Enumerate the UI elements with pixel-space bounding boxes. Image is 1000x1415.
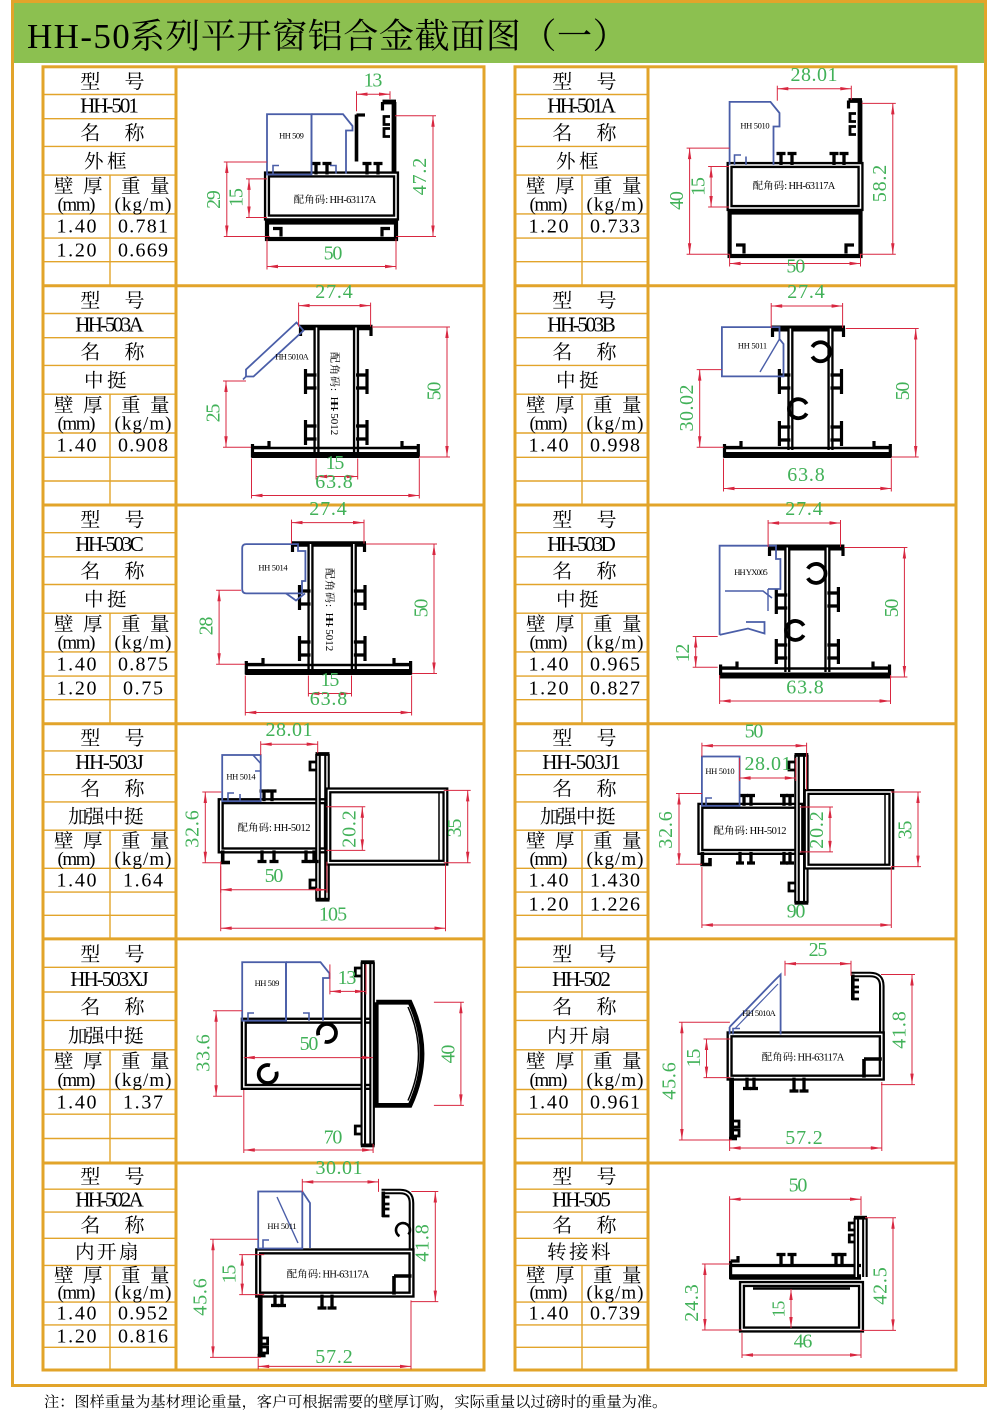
svg-text:(kg/m): (kg/m) — [587, 1283, 644, 1304]
svg-text:HH-503J: HH-503J — [75, 750, 144, 774]
svg-text:58.2: 58.2 — [869, 165, 891, 203]
svg-text:(mm): (mm) — [58, 1070, 96, 1091]
svg-text:(mm): (mm) — [530, 1070, 568, 1091]
svg-text:1.20: 1.20 — [529, 893, 569, 915]
svg-text:HH 5014: HH 5014 — [226, 772, 256, 782]
svg-text:(mm): (mm) — [58, 194, 96, 215]
svg-text:50: 50 — [786, 256, 805, 278]
svg-text:: HH-5012: : HH-5012 — [269, 823, 311, 834]
svg-text:HH 5010A: HH 5010A — [742, 1008, 776, 1018]
svg-text:: HH-63117A: : HH-63117A — [318, 1270, 370, 1281]
svg-text:HH-501A: HH-501A — [547, 94, 616, 118]
svg-text:45.6: 45.6 — [190, 1278, 212, 1316]
svg-text:15: 15 — [688, 177, 710, 196]
svg-text:1.20: 1.20 — [57, 240, 97, 262]
svg-text:15: 15 — [226, 188, 248, 207]
svg-text:50: 50 — [881, 599, 903, 618]
svg-text:25: 25 — [203, 404, 225, 423]
svg-text:1.20: 1.20 — [529, 216, 569, 238]
svg-text:HH-501: HH-501 — [80, 94, 139, 118]
svg-text:0.75: 0.75 — [123, 678, 163, 700]
svg-text:30.02: 30.02 — [676, 385, 698, 432]
svg-text:: HH-63117A: : HH-63117A — [793, 1053, 845, 1064]
svg-text:HH-50: HH-50 — [27, 17, 130, 56]
svg-text:57.2: 57.2 — [315, 1346, 353, 1368]
svg-text:1.20: 1.20 — [57, 1326, 97, 1348]
svg-text:32.6: 32.6 — [655, 811, 677, 849]
svg-text:(kg/m): (kg/m) — [587, 194, 644, 215]
svg-text:15: 15 — [683, 1049, 705, 1068]
svg-text:50: 50 — [745, 721, 764, 743]
svg-text:0.733: 0.733 — [590, 216, 640, 238]
svg-text:20.2: 20.2 — [339, 810, 361, 848]
svg-text:32.6: 32.6 — [182, 810, 204, 848]
svg-text:105: 105 — [319, 904, 347, 926]
svg-text:(kg/m): (kg/m) — [115, 849, 172, 870]
svg-text:20.2: 20.2 — [806, 811, 828, 849]
svg-text:(kg/m): (kg/m) — [115, 1070, 172, 1091]
svg-text:13: 13 — [338, 967, 357, 989]
svg-text:HH-503A: HH-503A — [75, 313, 144, 337]
svg-text:1.40: 1.40 — [57, 216, 97, 238]
svg-text:(mm): (mm) — [58, 849, 96, 870]
svg-text:-: - — [328, 408, 340, 412]
svg-text:2: 2 — [323, 646, 335, 652]
svg-text:0.908: 0.908 — [118, 435, 168, 457]
svg-text:63.8: 63.8 — [787, 464, 825, 486]
svg-text:0.781: 0.781 — [118, 216, 168, 238]
svg-text:(mm): (mm) — [58, 1283, 96, 1304]
svg-text:70: 70 — [324, 1127, 343, 1149]
svg-text:27.4: 27.4 — [315, 281, 353, 303]
svg-text:(mm): (mm) — [530, 1283, 568, 1304]
svg-text:0.965: 0.965 — [590, 654, 640, 676]
svg-text:12: 12 — [672, 644, 694, 663]
svg-text:1.40: 1.40 — [57, 654, 97, 676]
svg-text:HH 5010: HH 5010 — [705, 766, 734, 776]
svg-text:HH 509: HH 509 — [279, 131, 304, 141]
svg-text:0.875: 0.875 — [118, 654, 168, 676]
svg-text:50: 50 — [789, 1175, 808, 1197]
svg-text:27.4: 27.4 — [787, 281, 825, 303]
svg-text:28: 28 — [196, 617, 218, 636]
svg-text:(kg/m): (kg/m) — [587, 849, 644, 870]
svg-text:0.669: 0.669 — [118, 240, 168, 262]
svg-text:HH YX005: HH YX005 — [734, 567, 768, 577]
svg-text:35: 35 — [444, 819, 466, 838]
svg-text:1.430: 1.430 — [590, 870, 640, 892]
svg-text:63.8: 63.8 — [315, 471, 353, 493]
svg-text:63.8: 63.8 — [310, 688, 348, 710]
svg-text:28.01: 28.01 — [266, 719, 313, 741]
svg-text:27.4: 27.4 — [785, 498, 823, 520]
svg-text:1.40: 1.40 — [529, 1092, 569, 1114]
svg-text:1.64: 1.64 — [123, 870, 163, 892]
svg-text:0.816: 0.816 — [118, 1326, 168, 1348]
svg-text:(mm): (mm) — [58, 414, 96, 435]
svg-text:HH 5010A: HH 5010A — [275, 352, 309, 362]
svg-text:45.6: 45.6 — [659, 1062, 681, 1100]
svg-text:(kg/m): (kg/m) — [587, 1070, 644, 1091]
svg-text:2: 2 — [328, 430, 340, 436]
svg-text:1.40: 1.40 — [57, 435, 97, 457]
svg-text:1.20: 1.20 — [57, 678, 97, 700]
svg-text:HH-503J1: HH-503J1 — [542, 750, 620, 774]
svg-text:1.40: 1.40 — [57, 1303, 97, 1325]
svg-text::: : — [323, 604, 335, 607]
svg-text:HH-502: HH-502 — [552, 967, 611, 991]
svg-text:50: 50 — [265, 865, 284, 887]
svg-text:1.40: 1.40 — [529, 435, 569, 457]
svg-text:HH-505: HH-505 — [552, 1187, 611, 1211]
svg-text:57.2: 57.2 — [785, 1127, 823, 1149]
svg-text:40: 40 — [666, 191, 688, 210]
svg-text:0.739: 0.739 — [590, 1303, 640, 1325]
svg-text:1.226: 1.226 — [590, 893, 640, 915]
svg-text:30.01: 30.01 — [316, 1157, 363, 1179]
svg-text:25: 25 — [809, 939, 828, 961]
svg-text:(kg/m): (kg/m) — [587, 632, 644, 653]
svg-text:HH 5014: HH 5014 — [258, 563, 288, 573]
svg-text:1.40: 1.40 — [529, 1303, 569, 1325]
svg-text:50: 50 — [424, 382, 446, 401]
svg-text:(mm): (mm) — [530, 632, 568, 653]
svg-text:15: 15 — [769, 1301, 789, 1318]
svg-text:(mm): (mm) — [530, 414, 568, 435]
svg-text:(mm): (mm) — [58, 632, 96, 653]
svg-text:33.6: 33.6 — [193, 1034, 215, 1072]
svg-text:42.5: 42.5 — [870, 1267, 892, 1305]
svg-text:: HH-63117A: : HH-63117A — [325, 195, 377, 206]
svg-text:0.952: 0.952 — [118, 1303, 168, 1325]
svg-text:1.20: 1.20 — [529, 678, 569, 700]
svg-text:41.8: 41.8 — [412, 1224, 434, 1262]
svg-text:HH-503B: HH-503B — [547, 313, 616, 337]
svg-text:(kg/m): (kg/m) — [115, 414, 172, 435]
svg-text:1.37: 1.37 — [123, 1092, 163, 1114]
svg-text:HH-503C: HH-503C — [75, 532, 144, 556]
svg-text:1.40: 1.40 — [529, 870, 569, 892]
svg-text:28.01: 28.01 — [791, 64, 838, 86]
svg-text:HH 5010: HH 5010 — [740, 121, 769, 131]
svg-text:15: 15 — [219, 1265, 241, 1284]
svg-text:13: 13 — [364, 70, 383, 92]
svg-text:50: 50 — [892, 382, 914, 401]
svg-text:0.998: 0.998 — [590, 435, 640, 457]
svg-text:1.40: 1.40 — [57, 1092, 97, 1114]
svg-text:: HH-63117A: : HH-63117A — [784, 181, 836, 192]
svg-text:24.3: 24.3 — [681, 1284, 703, 1322]
svg-text:47.2: 47.2 — [409, 158, 431, 196]
svg-text:90: 90 — [787, 901, 806, 923]
svg-text:29: 29 — [203, 190, 225, 209]
svg-text:(kg/m): (kg/m) — [587, 414, 644, 435]
svg-text:(mm): (mm) — [530, 849, 568, 870]
svg-text:27.4: 27.4 — [309, 498, 347, 520]
svg-text:(kg/m): (kg/m) — [115, 194, 172, 215]
svg-text:50: 50 — [411, 599, 433, 618]
svg-text:(kg/m): (kg/m) — [115, 632, 172, 653]
svg-text:28.01: 28.01 — [745, 753, 792, 775]
svg-text:50: 50 — [300, 1033, 319, 1055]
svg-text:HH 509: HH 509 — [255, 978, 280, 988]
svg-text:HH 5011: HH 5011 — [267, 1221, 296, 1231]
svg-text:-: - — [323, 624, 335, 628]
svg-text:HH-503XJ: HH-503XJ — [70, 967, 148, 991]
svg-text:35: 35 — [895, 821, 917, 840]
svg-text:0.961: 0.961 — [590, 1092, 640, 1114]
svg-text:50: 50 — [324, 243, 343, 265]
svg-text:46: 46 — [794, 1331, 813, 1353]
svg-text:(kg/m): (kg/m) — [115, 1283, 172, 1304]
svg-text:HH-502A: HH-502A — [75, 1187, 144, 1211]
svg-text:40: 40 — [438, 1045, 460, 1064]
svg-text:1.40: 1.40 — [57, 870, 97, 892]
svg-text:0.827: 0.827 — [590, 678, 640, 700]
svg-text:41.8: 41.8 — [889, 1011, 911, 1049]
svg-text:(mm): (mm) — [530, 194, 568, 215]
svg-text:HH-503D: HH-503D — [547, 532, 616, 556]
svg-text::: : — [328, 388, 340, 391]
svg-text:: HH-5012: : HH-5012 — [745, 826, 787, 837]
svg-text:63.8: 63.8 — [786, 677, 824, 699]
svg-text:1.40: 1.40 — [529, 654, 569, 676]
svg-text:HH 5011: HH 5011 — [738, 341, 767, 351]
